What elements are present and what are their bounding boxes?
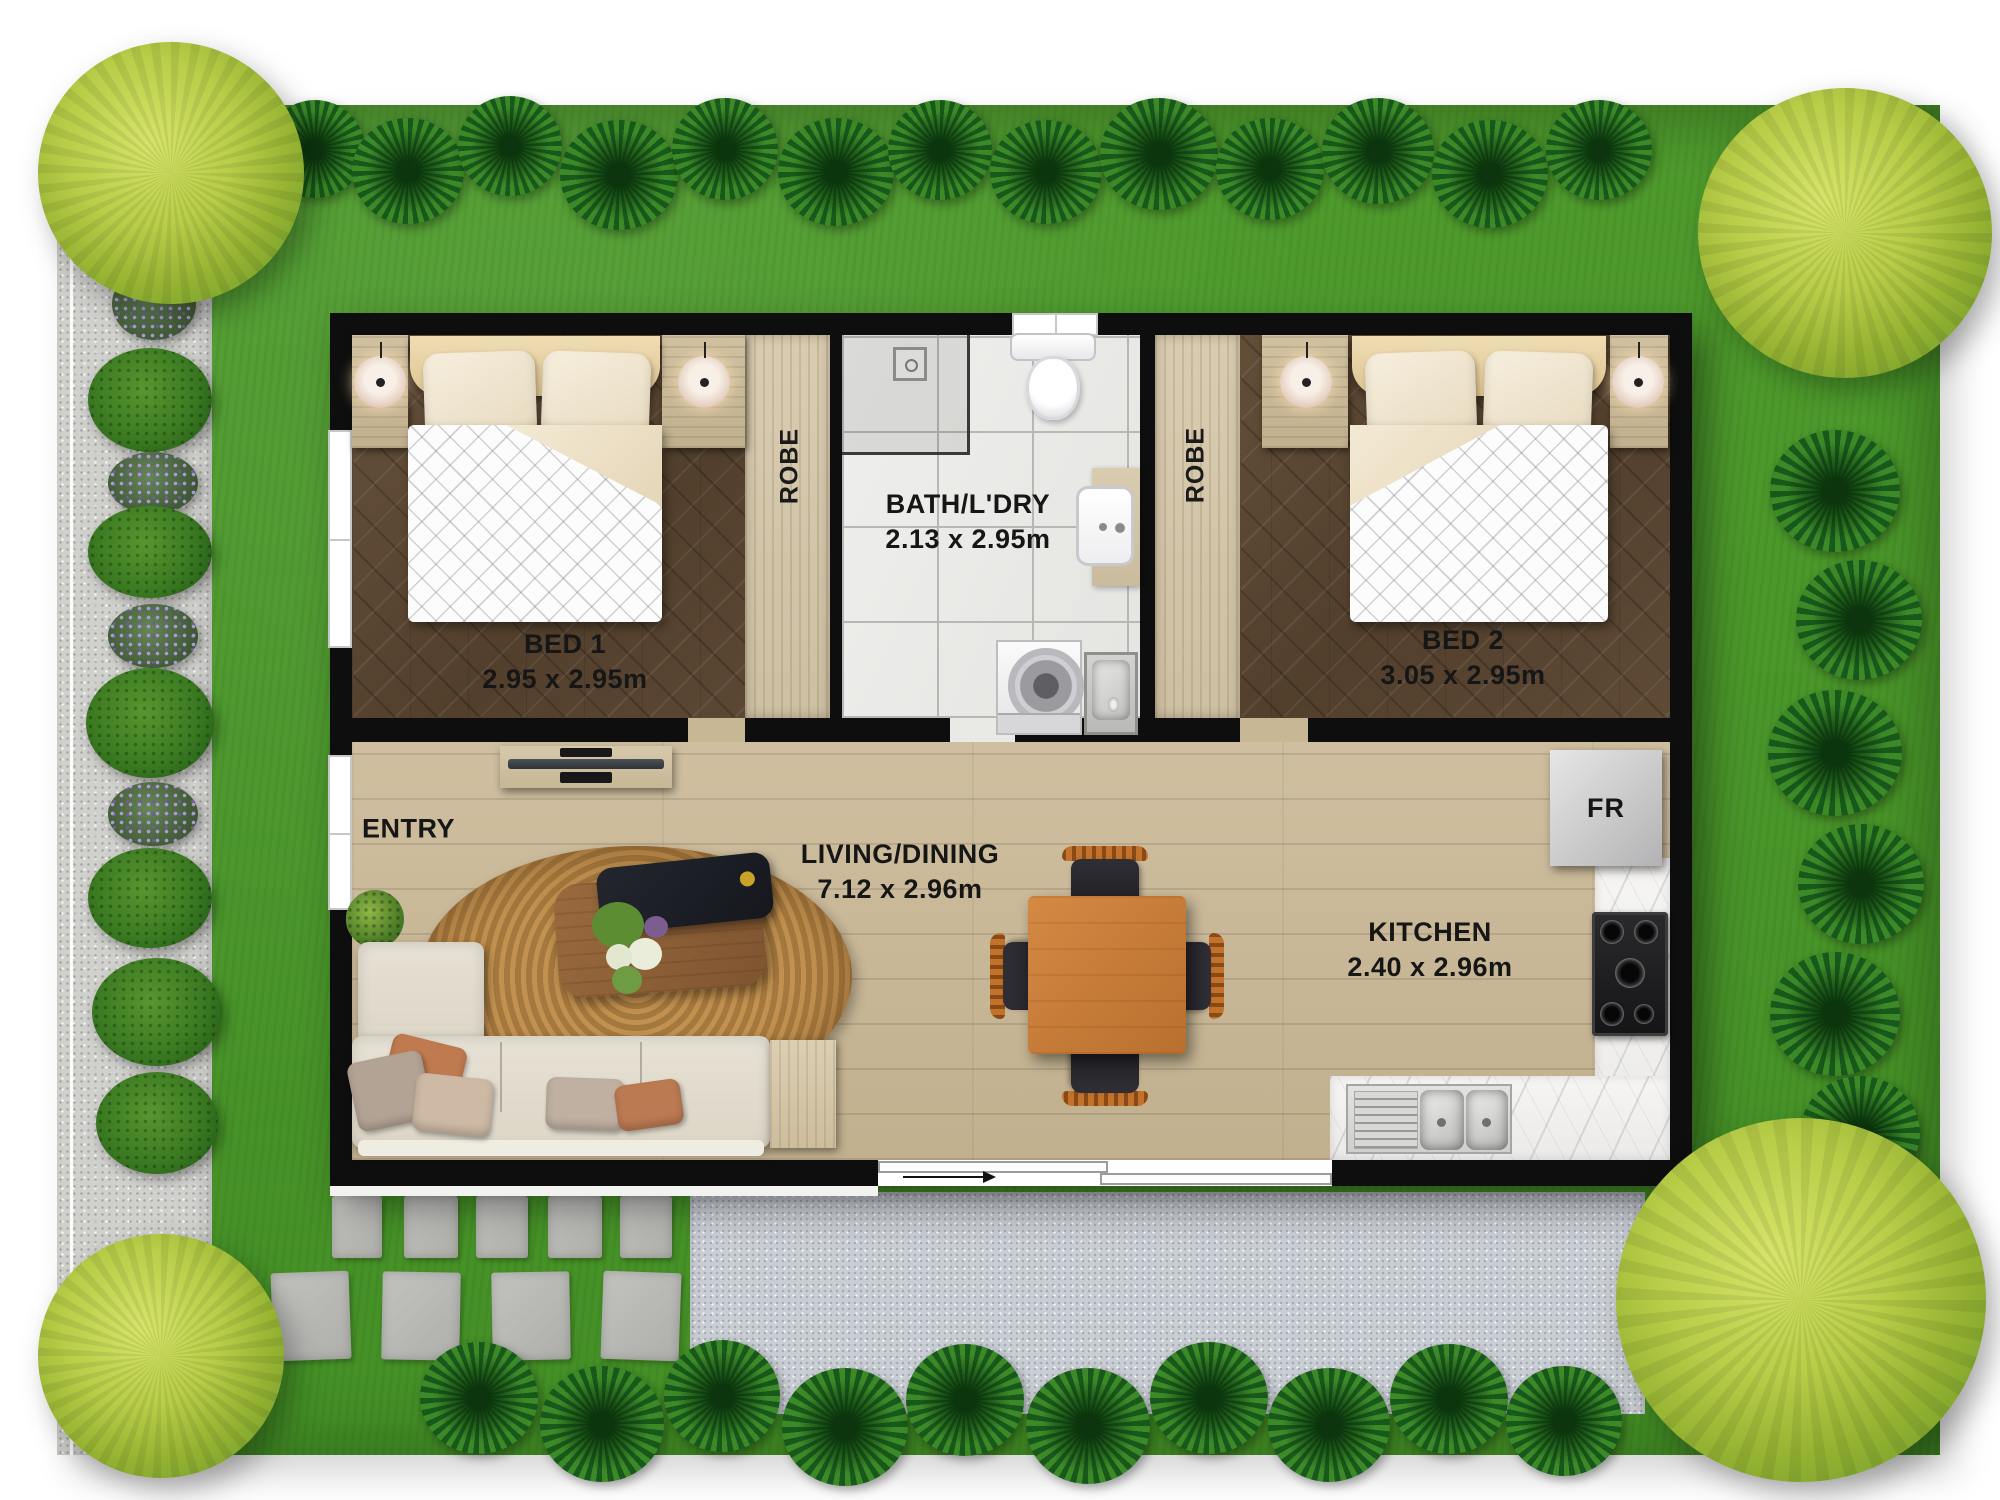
spiky-plant-icon (782, 1368, 908, 1486)
lavender-bush-icon (108, 604, 198, 668)
spiky-plant-icon (352, 118, 464, 224)
spiky-plant-icon (458, 96, 562, 196)
spiky-plant-icon (420, 1342, 538, 1454)
spiky-plant-icon (1768, 690, 1902, 816)
spiky-plant-icon (1798, 824, 1924, 944)
bush-icon (88, 348, 212, 452)
robe-cabinet (745, 335, 830, 718)
lavender-bush-icon (108, 452, 198, 514)
washer-panel (998, 713, 1080, 733)
floor-plan-canvas: FR BED 1 2.95 x 2.95m BATH/L'DRY 2.13 x … (0, 0, 2000, 1500)
cushion (613, 1078, 685, 1133)
spiky-plant-icon (1432, 120, 1548, 228)
spiky-plant-icon (672, 98, 778, 200)
spiky-plant-icon (1216, 118, 1324, 220)
dining-table-icon (1028, 896, 1186, 1054)
tap-dot (1099, 523, 1107, 531)
lavender-bush-icon (108, 782, 198, 846)
spiky-plant-icon (906, 1344, 1024, 1456)
gold-dish (739, 871, 755, 887)
cushion (411, 1072, 495, 1138)
bed2-label: BED 2 3.05 x 2.95m (1380, 623, 1545, 693)
sink-icon (1346, 1084, 1512, 1154)
tree-icon (38, 42, 304, 304)
lamp-icon (1612, 356, 1664, 408)
paver-icon (381, 1271, 461, 1360)
tree-icon (1698, 88, 1992, 378)
spiky-plant-icon (990, 120, 1102, 224)
room-dims: 3.05 x 2.95m (1380, 658, 1545, 693)
purple-flowers (644, 916, 668, 938)
room-dims: 2.95 x 2.95m (482, 662, 647, 697)
spiky-plant-icon (560, 120, 678, 230)
flower-bouquet (588, 892, 688, 1002)
basin-icon (1076, 486, 1134, 566)
laundry-tub-icon (1084, 652, 1138, 735)
room-dims: 7.12 x 2.96m (801, 872, 1000, 907)
sink-bowl (1420, 1090, 1464, 1150)
spiky-plant-icon (1770, 952, 1900, 1076)
room-dims: 2.40 x 2.96m (1347, 950, 1512, 985)
side-table (770, 1040, 836, 1148)
shower-rose (893, 347, 927, 381)
entry-door (328, 755, 352, 910)
tree-icon (38, 1234, 284, 1478)
sofa-chaise (358, 942, 484, 1044)
spiky-plant-icon (778, 118, 894, 226)
lamp-icon (354, 356, 406, 408)
robe-label: ROBE (776, 428, 805, 504)
spiky-plant-icon (1546, 100, 1652, 200)
lamp-icon (1280, 356, 1332, 408)
room-name: LIVING/DINING (801, 837, 1000, 872)
bath-label: BATH/L'DRY 2.13 x 2.95m (885, 487, 1050, 557)
room-name: KITCHEN (1347, 915, 1512, 950)
paver-icon (548, 1196, 602, 1258)
spiky-plant-icon (1506, 1366, 1622, 1476)
bush-icon (96, 1072, 218, 1174)
burner (1634, 1004, 1654, 1024)
paver-icon (476, 1196, 528, 1258)
robe-label: ROBE (1182, 427, 1211, 503)
bush-icon (88, 848, 212, 948)
bush-icon (92, 958, 222, 1066)
robe-cabinet (1155, 335, 1240, 718)
cushion-seam (500, 1042, 502, 1112)
spiky-plant-icon (1268, 1368, 1390, 1482)
spiky-plant-icon (1322, 98, 1434, 204)
burner (1600, 920, 1624, 944)
spiky-plant-icon (1770, 430, 1900, 552)
bed2-door-opening (1240, 718, 1308, 742)
sofa-base (358, 1140, 764, 1156)
sink-drainer (1354, 1091, 1418, 1149)
spiky-plant-icon (1796, 560, 1922, 680)
lamp-icon (678, 356, 730, 408)
room-name: BATH/L'DRY (885, 487, 1050, 522)
tv-screen (508, 759, 664, 769)
spiky-plant-icon (1100, 98, 1218, 210)
spiky-plant-icon (888, 100, 992, 200)
entry-arrow-icon (903, 1176, 985, 1178)
paver-icon (600, 1271, 681, 1362)
room-dims: 2.13 x 2.95m (885, 522, 1050, 557)
entry-label: ENTRY (362, 811, 455, 846)
fridge-label: FR (1587, 793, 1625, 824)
toilet-bowl (1026, 356, 1080, 420)
kitchen-label: KITCHEN 2.40 x 2.96m (1347, 915, 1512, 985)
tv-unit-icon (500, 746, 672, 788)
burner (1634, 920, 1658, 944)
spiky-plant-icon (1390, 1344, 1508, 1454)
living-label: LIVING/DINING 7.12 x 2.96m (801, 837, 1000, 907)
tub-drain (1108, 697, 1119, 712)
sink-bowl (1466, 1090, 1508, 1150)
burner (1600, 1002, 1624, 1026)
bush-icon (88, 506, 212, 598)
foliage (612, 966, 642, 994)
bed1-label: BED 1 2.95 x 2.95m (482, 627, 647, 697)
washing-machine-icon (996, 640, 1082, 735)
tree-icon (1616, 1118, 1986, 1482)
room-name: ENTRY (362, 811, 455, 846)
spiky-plant-icon (1150, 1342, 1268, 1454)
cooktop-icon (1592, 912, 1668, 1036)
sliding-door (878, 1160, 1332, 1186)
bed1-window (328, 430, 352, 648)
paver-icon (404, 1196, 458, 1258)
soundbar (560, 748, 612, 757)
bush-icon (86, 668, 214, 778)
plant-icon (346, 890, 404, 948)
room-name: BED 2 (1380, 623, 1545, 658)
paver-icon (332, 1196, 382, 1258)
white-flowers (628, 938, 662, 970)
media-box (560, 772, 612, 783)
threshold-strip (330, 1186, 878, 1196)
tap-dot (1115, 523, 1125, 533)
cushion (545, 1077, 625, 1132)
spiky-plant-icon (1026, 1368, 1150, 1484)
bed1-door-opening (688, 718, 745, 742)
paver-icon (620, 1196, 672, 1258)
fridge-icon: FR (1550, 750, 1662, 866)
burner (1615, 958, 1645, 988)
spiky-plant-icon (664, 1340, 780, 1452)
spiky-plant-icon (540, 1366, 664, 1482)
room-name: BED 1 (482, 627, 647, 662)
sliding-door-leaf (1100, 1173, 1332, 1185)
